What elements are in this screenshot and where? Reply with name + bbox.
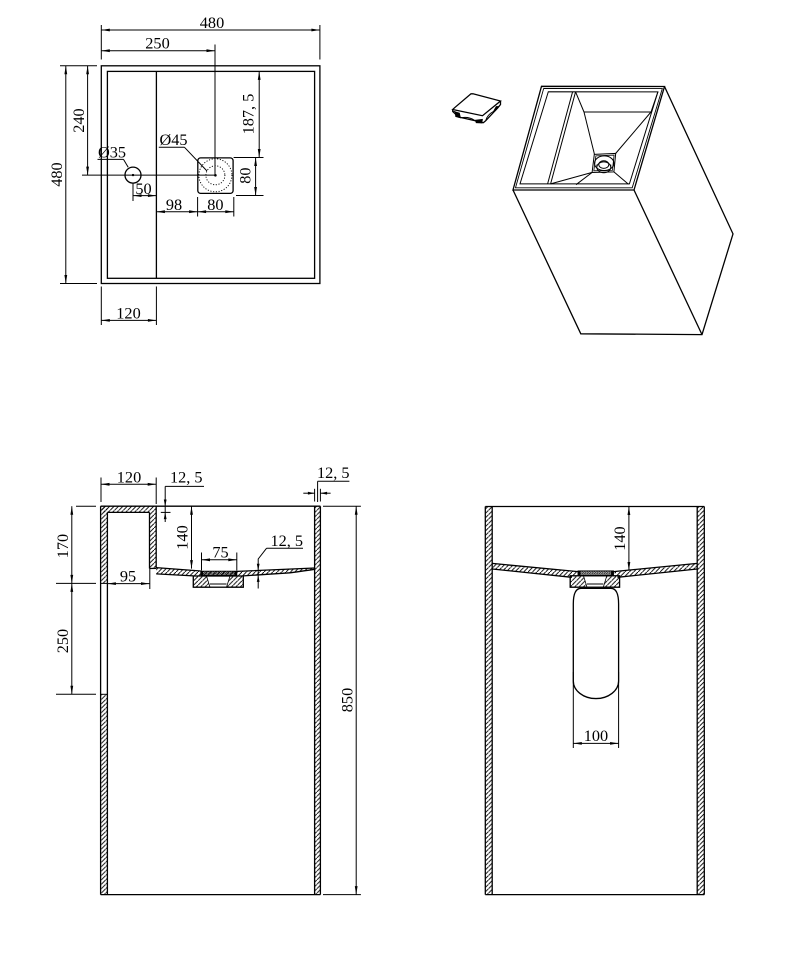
- svg-text:480: 480: [200, 13, 224, 32]
- svg-text:170: 170: [53, 534, 72, 558]
- svg-text:250: 250: [53, 629, 72, 653]
- svg-text:50: 50: [135, 179, 151, 198]
- svg-text:12, 5: 12, 5: [170, 468, 203, 487]
- svg-text:100: 100: [584, 726, 608, 745]
- svg-text:140: 140: [173, 525, 192, 549]
- svg-text:Ø45: Ø45: [160, 130, 188, 149]
- svg-text:98: 98: [166, 195, 182, 214]
- svg-text:187, 5: 187, 5: [238, 94, 257, 135]
- svg-text:850: 850: [337, 688, 356, 712]
- svg-text:250: 250: [145, 34, 169, 53]
- svg-text:80: 80: [207, 195, 223, 214]
- svg-text:12, 5: 12, 5: [317, 463, 350, 482]
- svg-text:12, 5: 12, 5: [271, 531, 304, 550]
- svg-text:Ø35: Ø35: [98, 142, 126, 161]
- svg-text:80: 80: [236, 167, 255, 183]
- svg-text:480: 480: [47, 162, 66, 186]
- svg-text:240: 240: [69, 108, 88, 132]
- svg-text:120: 120: [116, 303, 140, 322]
- svg-text:95: 95: [120, 567, 136, 586]
- svg-text:120: 120: [117, 467, 141, 486]
- svg-text:75: 75: [212, 543, 228, 562]
- svg-text:140: 140: [610, 526, 629, 550]
